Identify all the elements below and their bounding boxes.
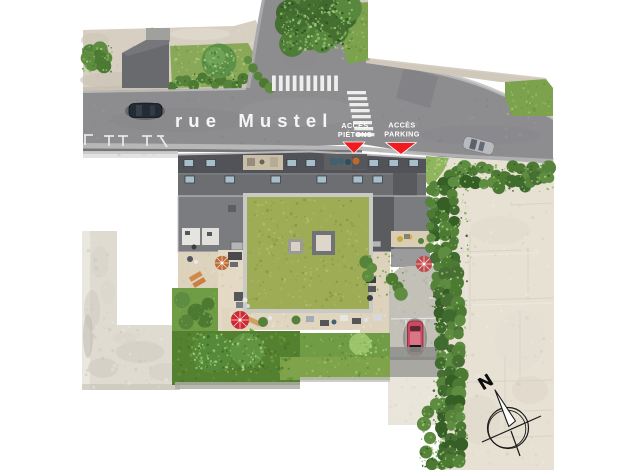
svg-text:ACCÈS: ACCÈS bbox=[388, 121, 415, 130]
svg-text:rue Mustel: rue Mustel bbox=[175, 110, 334, 131]
svg-text:PIÉTONS: PIÉTONS bbox=[338, 130, 372, 139]
svg-text:ACCÈS: ACCÈS bbox=[341, 121, 368, 130]
svg-text:PARKING: PARKING bbox=[384, 130, 419, 139]
